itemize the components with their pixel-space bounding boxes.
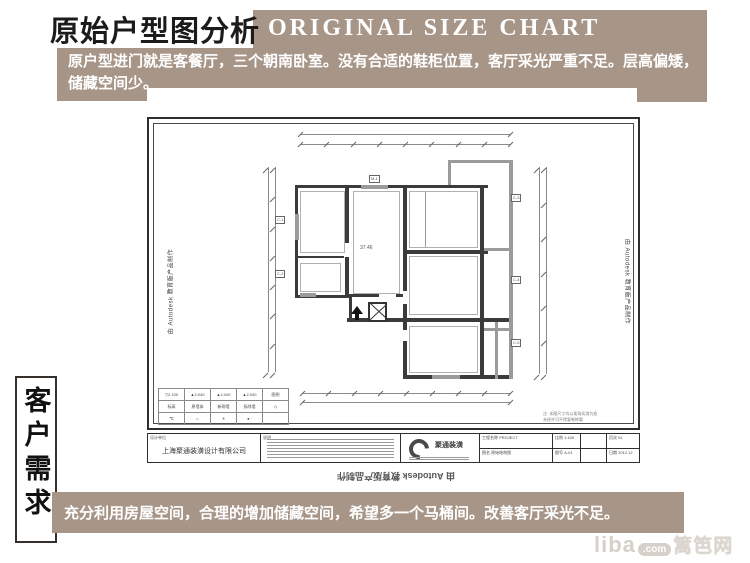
liba-com-badge: .com	[638, 543, 671, 556]
footer-bar: 充分利用房屋空间，合理的增加储藏空间，希望多一个马桶间。改善客厅采光不足。	[52, 492, 684, 533]
legend-cell: ▲2.040	[211, 389, 237, 401]
liba-watermark: liba .com 篱笆网	[594, 531, 733, 558]
plan-wall	[409, 256, 478, 315]
plan-wall	[403, 304, 407, 330]
legend-cell: 图例	[263, 389, 289, 401]
customer-needs-box: 客户需求	[15, 376, 57, 543]
plan-wall	[345, 188, 349, 243]
legend-cell: ▲2.040	[185, 389, 211, 401]
legend-cell: ▲2.040	[237, 389, 263, 401]
customer-needs-label: 客户需求	[17, 386, 56, 522]
footer-text: 充分利用房屋空间，合理的增加储藏空间，希望多一个马桶间。改善客厅采光不足。	[52, 502, 619, 523]
company-name: 上海聚通装潢设计有限公司	[148, 446, 260, 456]
plan-wall	[495, 322, 498, 379]
logo-text: 聚通装潢	[435, 440, 463, 450]
legend-cell: ☼	[185, 413, 211, 425]
plan-wall	[403, 250, 488, 254]
title-block-logo-cell: 聚通装潢	[401, 434, 480, 462]
plan-wall	[396, 294, 403, 297]
sheet-notes: 注: 本图尺寸均以现场实测为准 未经许可不得复制转载	[543, 411, 623, 423]
liba-logo: liba	[594, 532, 636, 558]
plan-wall	[484, 248, 513, 251]
plan-wall	[432, 375, 460, 379]
legend-cell: ▽2.100	[159, 389, 185, 401]
room-area-label: 37.46	[360, 245, 373, 251]
notes-text-lines	[267, 439, 394, 458]
plan-wall	[300, 263, 341, 292]
plan-wall	[448, 160, 513, 163]
plan-wall	[349, 294, 379, 297]
liba-cn-text: 篱笆网	[673, 531, 733, 558]
legend-cell: ✳	[211, 413, 237, 425]
plan-wall	[295, 185, 298, 298]
plan-wall	[409, 326, 478, 373]
plan-wall	[403, 188, 407, 291]
plan-tag: C-2	[275, 270, 285, 278]
scale-value: 1:100	[564, 435, 574, 440]
legend-cell: 标高	[159, 401, 185, 413]
legend-table: ▽2.100▲2.040▲2.040▲2.040图例标高原墙体新砌墙拆除墙◇℃☼…	[158, 388, 289, 425]
page-title-box: 原始户型图分析	[57, 10, 253, 48]
drawing-name: 原始结构图	[491, 450, 511, 455]
legend-cell: ● ·	[237, 413, 263, 425]
legend-cell	[263, 413, 289, 425]
plan-tag: C-5	[511, 339, 521, 347]
page-title-cn: 原始户型图分析	[50, 8, 260, 50]
title-block: 设计单位 上海聚通装潢设计有限公司 说明 聚通装潢 工程名称 PROJECT 图…	[147, 433, 640, 463]
plan-wall	[297, 256, 344, 258]
legend-cell: ℃	[159, 413, 185, 425]
autodesk-watermark-bottom: 由 Autodesk 教育版产品制作	[337, 470, 455, 483]
plan-wall	[480, 188, 484, 378]
plan-wall	[403, 341, 407, 379]
legend-cell: ◇	[263, 401, 289, 413]
plan-wall	[345, 257, 349, 298]
legend-cell: 新砌墙	[211, 401, 237, 413]
entry-arrow-icon	[351, 306, 363, 314]
plan-tag: C-1	[275, 216, 285, 224]
plan-tag: C-3	[511, 194, 521, 202]
legend-cell: 原墙体	[185, 401, 211, 413]
header-description: 原户型进门就是客餐厅，三个朝南卧室。没有合适的鞋柜位置，客厅采光严重不足。层高偏…	[68, 51, 698, 95]
plan-tag: M-1	[369, 175, 380, 183]
plan-wall	[361, 185, 388, 189]
plan-tag: C-4	[511, 276, 521, 284]
title-block-notes-cell: 说明	[261, 434, 401, 462]
plan-wall	[353, 191, 400, 294]
cad-sheet: 由 Autodesk 教育版产品制作 由 Autodesk 教育版产品制作 C-…	[147, 117, 640, 463]
plan-wall	[448, 163, 451, 185]
title-block-company-cell: 设计单位 上海聚通装潢设计有限公司	[148, 434, 261, 462]
plan-wall	[300, 293, 316, 297]
title-block-project-cell: 工程名称 PROJECT 图名 原始结构图	[480, 434, 553, 462]
autodesk-watermark-left: 由 Autodesk 教育版产品制作	[166, 232, 175, 352]
plan-wall	[295, 185, 488, 188]
plan-wall	[295, 214, 299, 240]
elevator-shaft	[368, 302, 387, 322]
legend-cell: 拆除墙	[237, 401, 263, 413]
plan-wall	[300, 191, 345, 253]
title-block-scale-cell: 比例 1:100 图号 A-01	[553, 434, 607, 462]
page-title-en: ORIGINAL SIZE CHART	[268, 15, 600, 42]
plan-wall	[484, 328, 513, 331]
plan-wall	[409, 191, 478, 248]
autodesk-watermark-right: 由 Autodesk 教育版产品制作	[624, 222, 633, 342]
title-block-date-cell: 页次 01 日期 2012.12	[607, 434, 639, 462]
